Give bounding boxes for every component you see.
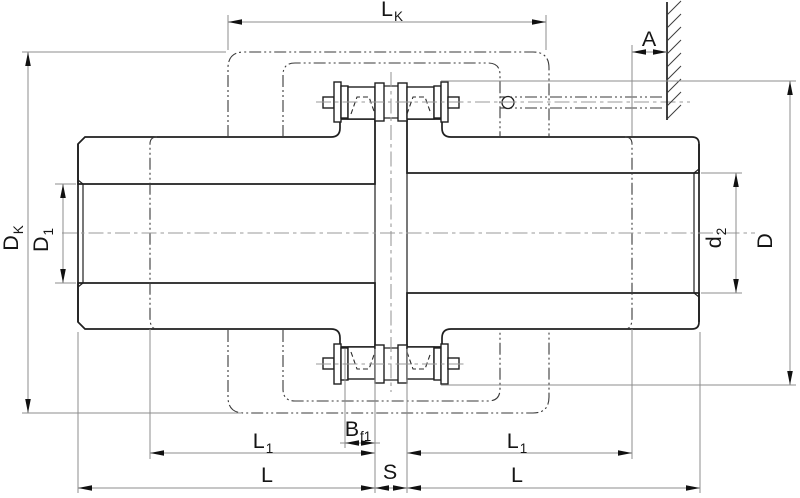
dim-label-l-left: L <box>261 463 273 487</box>
right-hub-top-flange-section <box>407 119 699 173</box>
left-hub-top-flange-section <box>78 119 375 184</box>
dimension-lk: LK <box>228 0 546 50</box>
dim-label-l1-right: L1 <box>507 429 527 456</box>
dim-label-s: S <box>383 460 397 484</box>
dimension-l1-right: L1 <box>407 429 632 456</box>
centerlines <box>62 72 755 392</box>
phantom-shifted-hub-right <box>625 137 632 459</box>
dim-label-d2: d2 <box>702 228 729 248</box>
wall-hatching <box>667 1 681 119</box>
dim-label-bf1: Bf1 <box>345 417 372 444</box>
dim-label-d-outer: D <box>753 233 777 249</box>
phantom-shifted-hub-left <box>150 137 157 459</box>
coupling-drawing-page: LK A DK D1 d2 D <box>0 0 800 498</box>
dim-label-dk: DK <box>0 225 26 251</box>
dim-label-d1: D1 <box>29 228 56 252</box>
coupling-technical-drawing: LK A DK D1 d2 D <box>0 0 800 498</box>
dim-label-lk: LK <box>381 0 403 24</box>
right-hub-bottom-flange-section <box>407 293 699 347</box>
dim-label-a: A <box>642 27 657 51</box>
dim-label-l1-left: L1 <box>253 429 273 456</box>
dim-label-l-right: L <box>511 463 523 487</box>
left-hub-bottom-flange-section <box>78 283 375 347</box>
